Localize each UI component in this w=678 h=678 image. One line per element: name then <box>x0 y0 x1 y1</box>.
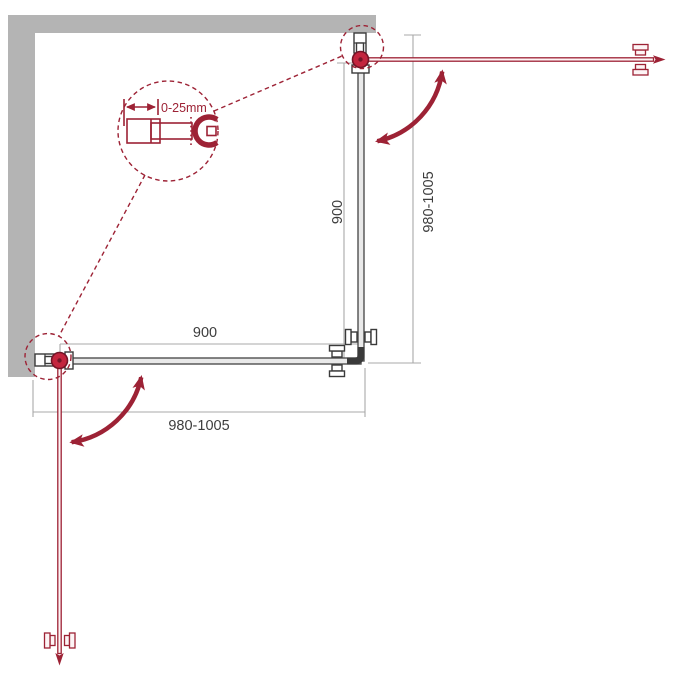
dimension-labels: 900 980-1005 900 980-1005 <box>168 171 437 434</box>
walls <box>8 15 376 377</box>
label-door-width-right: 900 <box>330 200 346 224</box>
knob-cap <box>371 330 377 345</box>
knob-cap <box>330 346 345 352</box>
diagram-canvas: 0-25mm 900 980-1005 900 980-1005 <box>0 0 678 678</box>
glass-panels <box>71 71 364 364</box>
bottom-glass-panel <box>71 358 361 364</box>
knob-cap <box>346 330 352 345</box>
door-knob-flange <box>50 636 55 646</box>
knob-cap <box>330 371 345 377</box>
right-glass-panel <box>358 71 364 361</box>
callout-leader-to-top-hinge <box>214 56 342 111</box>
shower-enclosure-diagram: 0-25mm 900 980-1005 900 980-1005 <box>0 0 678 678</box>
adjustment-range-label: 0-25mm <box>161 101 207 115</box>
knob-flange <box>365 332 371 342</box>
left-hinge-center <box>57 358 61 362</box>
knob-flange <box>332 351 342 357</box>
corner-joint <box>347 347 361 361</box>
door-knob-cap <box>70 633 76 648</box>
knob-flange <box>332 365 342 371</box>
open-door-line <box>367 58 654 61</box>
door-knob-flange <box>636 50 646 55</box>
swing-arrow-bottom-door <box>72 377 142 442</box>
door-knob-cap <box>45 633 51 648</box>
label-overall-depth-right: 980-1005 <box>421 171 437 232</box>
label-door-width-bottom: 900 <box>193 325 217 341</box>
label-overall-width-bottom: 980-1005 <box>168 418 229 434</box>
door-knob-cap <box>633 45 648 51</box>
left-wall <box>8 15 35 377</box>
profile-sliding-section <box>151 123 192 139</box>
door-knob-cap <box>633 70 648 76</box>
top-wall <box>8 15 376 33</box>
door-edge-arrow <box>55 653 63 666</box>
door-knob-flange <box>65 636 70 646</box>
callout-leader-to-left-hinge <box>59 175 145 336</box>
door-knob-flange <box>636 65 646 70</box>
top-hinge-center <box>358 57 362 61</box>
open-door-top <box>367 45 666 76</box>
door-edge-arrow <box>653 55 666 63</box>
hinges <box>52 52 369 369</box>
profile-detail-drawing: 0-25mm <box>124 99 217 145</box>
knob-flange <box>351 332 357 342</box>
open-door-line <box>58 367 61 654</box>
callout-bubble <box>118 81 218 181</box>
pivot-ring-section <box>195 117 217 145</box>
pivot-ring-insert <box>207 127 216 136</box>
swing-arrow-top-door <box>377 72 442 142</box>
